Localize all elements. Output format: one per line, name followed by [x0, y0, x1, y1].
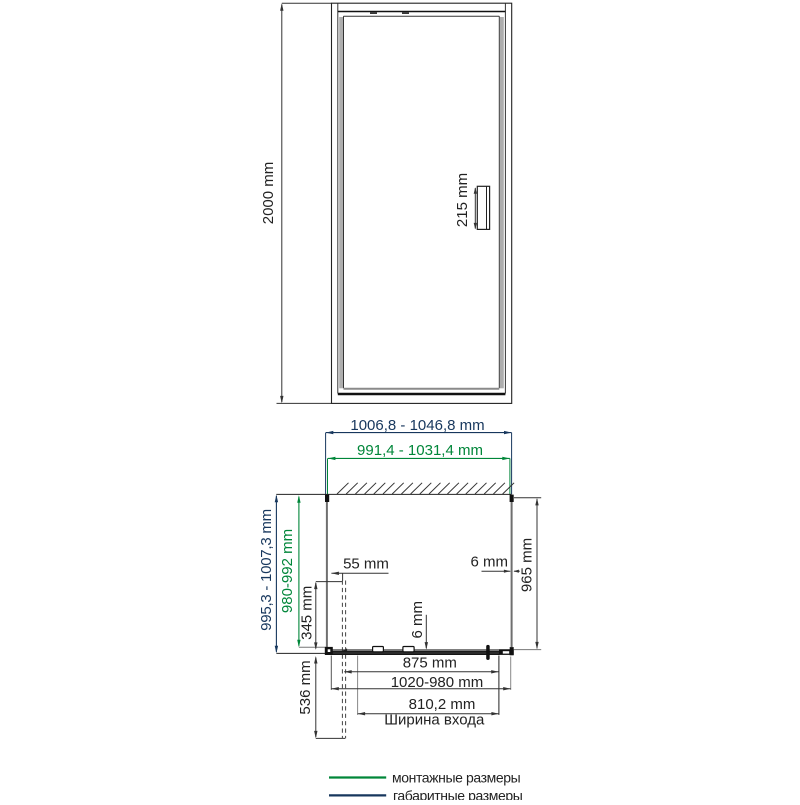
svg-text:1020-980 mm: 1020-980 mm: [391, 674, 484, 691]
svg-text:монтажные размеры: монтажные размеры: [392, 770, 521, 786]
svg-text:875 mm: 875 mm: [403, 655, 457, 672]
svg-text:1006,8 - 1046,8 mm: 1006,8 - 1046,8 mm: [350, 417, 484, 434]
svg-text:Ширина входа: Ширина входа: [384, 712, 485, 729]
svg-text:810,2 mm: 810,2 mm: [409, 696, 476, 713]
svg-text:536 mm: 536 mm: [297, 660, 314, 714]
svg-text:6 mm: 6 mm: [471, 554, 509, 571]
svg-text:габаритные размеры: габаритные размеры: [393, 787, 523, 800]
svg-text:55 mm: 55 mm: [343, 556, 389, 573]
svg-text:345 mm: 345 mm: [298, 586, 315, 640]
svg-text:980-992 mm: 980-992 mm: [279, 529, 296, 613]
svg-text:6 mm: 6 mm: [409, 601, 426, 639]
svg-text:2000 mm: 2000 mm: [260, 162, 277, 225]
svg-text:215 mm: 215 mm: [454, 173, 471, 227]
svg-text:965 mm: 965 mm: [518, 538, 535, 592]
svg-text:995,3 - 1007,3 mm: 995,3 - 1007,3 mm: [258, 509, 275, 631]
svg-text:991,4 - 1031,4 mm: 991,4 - 1031,4 mm: [357, 442, 483, 459]
